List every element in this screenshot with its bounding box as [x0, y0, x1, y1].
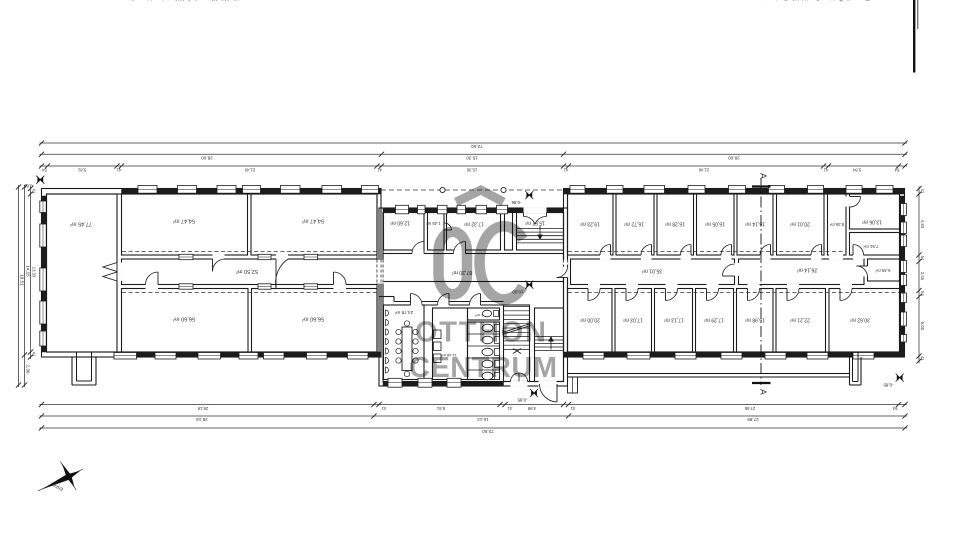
svg-text:13,06 m²: 13,06 m² [862, 219, 882, 225]
svg-text:54: 54 [42, 167, 47, 172]
svg-text:21,43: 21,43 [244, 167, 255, 172]
svg-text:5,00: 5,00 [920, 322, 925, 331]
svg-text:28,60: 28,60 [201, 155, 213, 160]
svg-text:41: 41 [32, 189, 37, 194]
svg-text:56,60 m²: 56,60 m² [302, 316, 324, 322]
svg-text:22,21 m²: 22,21 m² [790, 317, 810, 323]
svg-text:52,50 m²: 52,50 m² [236, 268, 258, 274]
svg-text:4,98: 4,98 [527, 406, 536, 411]
svg-text:15,30: 15,30 [466, 155, 478, 160]
svg-text:14,15: 14,15 [25, 265, 30, 277]
svg-text:28,60: 28,60 [728, 155, 740, 160]
svg-text:A: A [758, 389, 768, 395]
svg-text:72,50: 72,50 [482, 429, 494, 434]
svg-text:54,47 m²: 54,47 m² [302, 218, 324, 224]
svg-text:5,91: 5,91 [436, 406, 445, 411]
svg-text:15,30: 15,30 [466, 167, 477, 172]
svg-text:27,65: 27,65 [744, 406, 755, 411]
svg-text:OTTHON: OTTHON [415, 317, 546, 349]
svg-text:Kiváló állapotú, felújított ip: Kiváló állapotú, felújított ipari ingatl… [124, 0, 240, 1]
svg-text:41: 41 [507, 406, 512, 411]
svg-text:19,23 m²: 19,23 m² [580, 221, 600, 227]
svg-text:21,40: 21,40 [698, 167, 709, 172]
svg-text:56,60 m²: 56,60 m² [173, 316, 195, 322]
svg-text:17,29 m²: 17,29 m² [704, 317, 724, 323]
svg-text:6,49 m²: 6,49 m² [875, 268, 890, 273]
svg-text:54: 54 [920, 291, 925, 296]
svg-text:17,13 m²: 17,13 m² [664, 317, 684, 323]
svg-text:54,47 m²: 54,47 m² [173, 218, 195, 224]
svg-text:24,78 m²: 24,78 m² [394, 310, 413, 315]
svg-text:12,60 m²: 12,60 m² [390, 220, 410, 226]
svg-text:28,19: 28,19 [196, 417, 208, 422]
svg-text:54: 54 [920, 256, 925, 261]
svg-text:-0,85: -0,85 [883, 382, 894, 387]
svg-text:41: 41 [377, 167, 382, 172]
svg-text:41: 41 [116, 167, 121, 172]
svg-text:28,19: 28,19 [197, 406, 208, 411]
svg-text:-0,86: -0,86 [511, 200, 522, 205]
svg-text:-0,85: -0,85 [517, 397, 528, 402]
svg-text:27,85: 27,85 [747, 417, 759, 422]
svg-text:41: 41 [32, 352, 37, 357]
svg-text:CENTRUM: CENTRUM [409, 352, 557, 384]
svg-text:8,36 m²: 8,36 m² [829, 222, 844, 227]
svg-text:2,45: 2,45 [920, 272, 925, 281]
svg-text:41: 41 [381, 406, 386, 411]
svg-text:7,51 m²: 7,51 m² [863, 244, 878, 249]
svg-text:1,49 m²: 1,49 m² [426, 221, 441, 226]
svg-text:41: 41 [570, 406, 575, 411]
svg-text:41: 41 [920, 356, 925, 361]
svg-text:20,01 m²: 20,01 m² [790, 221, 810, 227]
svg-text:16,12: 16,12 [477, 417, 489, 422]
svg-text:16,72 m²: 16,72 m² [624, 221, 644, 227]
svg-text:4,93: 4,93 [920, 220, 925, 229]
svg-text:26,14 m²: 26,14 m² [796, 267, 817, 273]
svg-text:18,51: 18,51 [19, 274, 24, 286]
svg-text:16,05 m²: 16,05 m² [705, 221, 725, 227]
svg-text:17,32 m²: 17,32 m² [464, 221, 484, 227]
svg-text:15,57 m²: 15,57 m² [525, 220, 545, 226]
svg-text:13,33: 13,33 [32, 267, 37, 278]
svg-text:41: 41 [563, 167, 568, 172]
svg-text:35,01 m²: 35,01 m² [641, 268, 662, 274]
svg-text:2,36: 2,36 [25, 365, 30, 374]
svg-text:16,28 m²: 16,28 m² [665, 221, 685, 227]
svg-text:5,81: 5,81 [77, 167, 86, 172]
svg-text:17,03 m²: 17,03 m² [623, 317, 643, 323]
svg-text:72,60: 72,60 [471, 144, 483, 149]
svg-text:77,45 m²: 77,45 m² [70, 221, 92, 227]
svg-text:41: 41 [920, 189, 925, 194]
svg-text:41: 41 [823, 167, 828, 172]
svg-text:16,14 m²: 16,14 m² [745, 221, 765, 227]
svg-text:20,00 m²: 20,00 m² [580, 317, 600, 323]
svg-text:54: 54 [892, 406, 897, 411]
svg-text:16,98 m²: 16,98 m² [745, 317, 765, 323]
svg-text:54: 54 [894, 167, 899, 172]
svg-text:A: A [758, 173, 768, 179]
svg-text:5,84: 5,84 [852, 167, 861, 172]
svg-text:30,62 m²: 30,62 m² [850, 317, 870, 323]
